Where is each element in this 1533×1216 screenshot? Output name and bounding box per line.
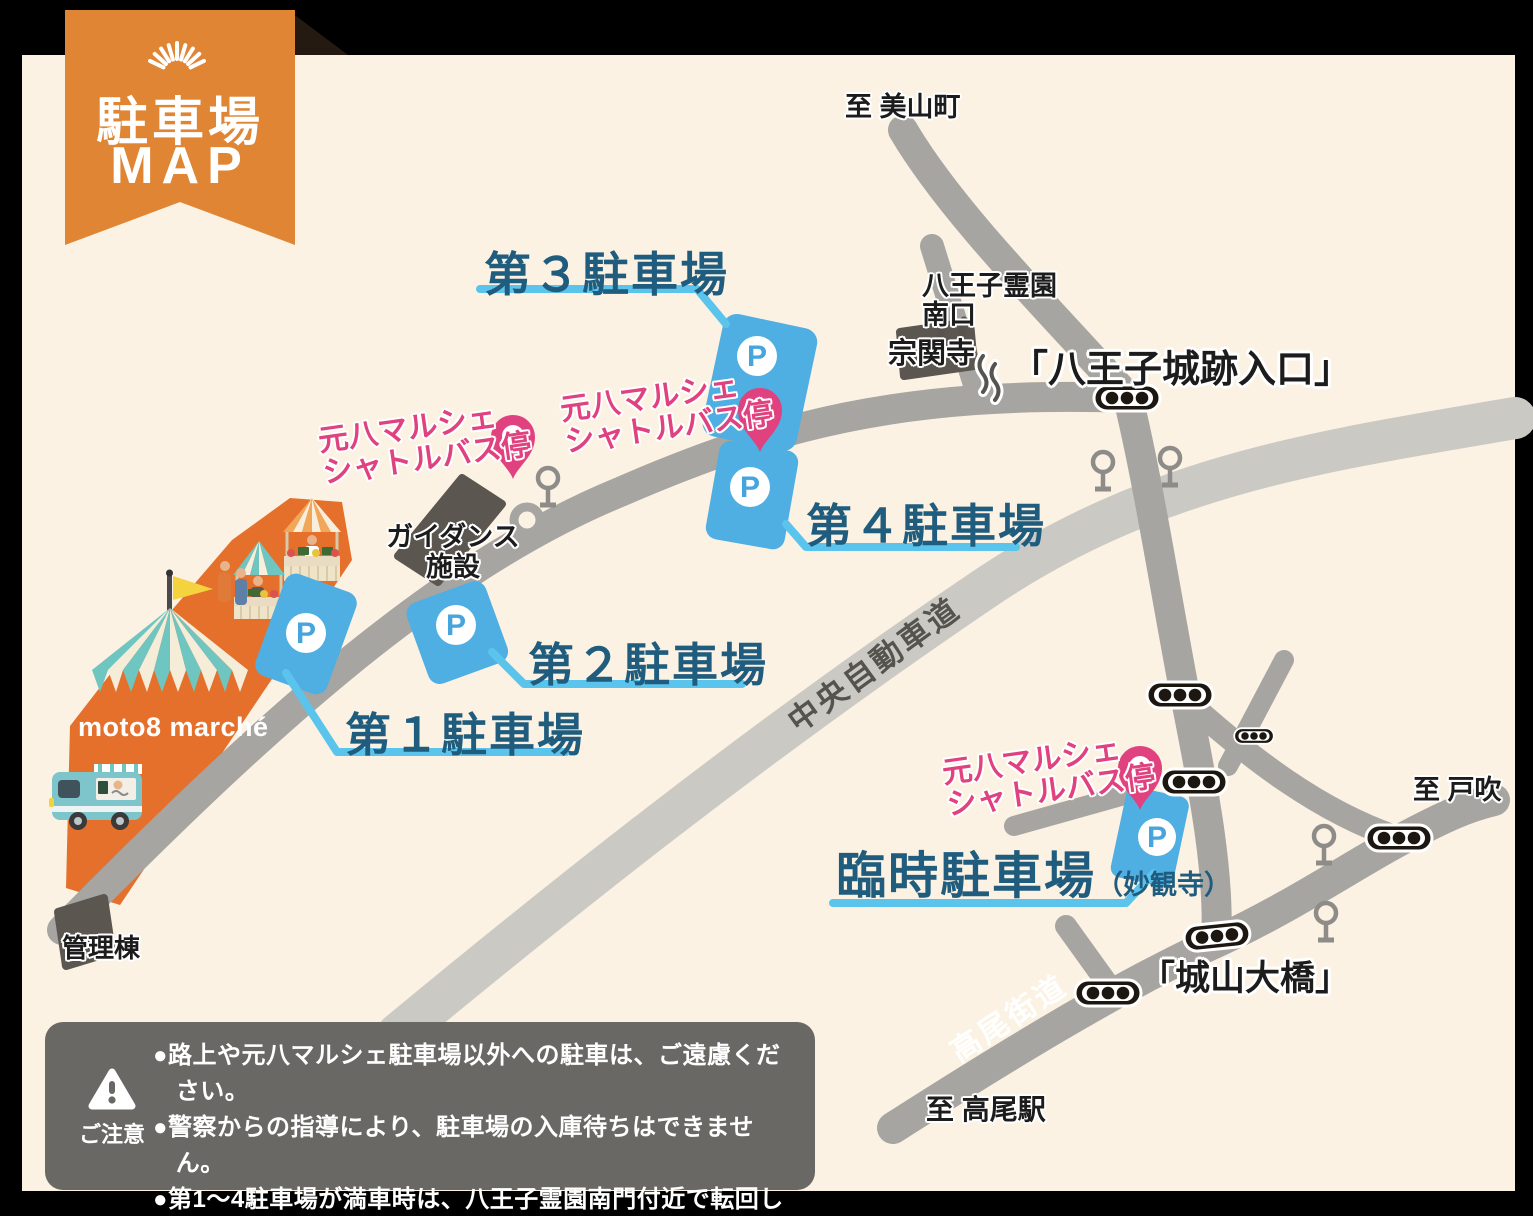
- ribbon-fold: [292, 13, 348, 55]
- label-miyama: 至 美山町: [845, 85, 961, 124]
- label-lot3: 第３駐車場: [484, 236, 729, 305]
- label-temp-parking: 臨時駐車場 （妙観寺）: [836, 836, 1231, 908]
- label-takao-station: 至 高尾駅: [926, 1088, 1046, 1128]
- svg-text:P: P: [446, 609, 466, 642]
- p-marker-2: P: [436, 605, 476, 645]
- p-marker-4: P: [730, 467, 770, 507]
- label-guidance-line1: ガイダンス: [383, 522, 523, 552]
- notice-item: ●第1〜4駐車場が満車時は、八王子霊園南門付近で転回していただく場合があります。…: [153, 1182, 797, 1216]
- label-lot2: 第２駐車場: [528, 629, 768, 695]
- label-reien-line2: 南口: [922, 301, 1057, 330]
- notice-icon-column: ご注意: [71, 1038, 153, 1178]
- traffic-light-icon: [1366, 825, 1432, 851]
- traffic-light-icon: [1161, 769, 1227, 795]
- p-marker-1: P: [286, 613, 326, 653]
- svg-text:P: P: [740, 471, 760, 504]
- label-lot4: 第４駐車場: [806, 490, 1046, 556]
- label-shiroyama-bridge: 「城山大橋」: [1140, 950, 1350, 1001]
- traffic-light-icon: [1075, 980, 1141, 1006]
- label-reien-line1: 八王子霊園: [922, 272, 1057, 301]
- notice-heading: ご注意: [79, 1117, 145, 1149]
- person-icon: [236, 568, 246, 578]
- p-marker-3: P: [737, 336, 777, 376]
- notice-item: ●路上や元八マルシェ駐車場以外への駐車は、ご遠慮ください。: [153, 1038, 797, 1110]
- notice-items: ●路上や元八マルシェ駐車場以外への駐車は、ご遠慮ください。 ●警察からの指導によ…: [153, 1038, 797, 1178]
- ribbon-subtitle: MAP: [65, 136, 295, 196]
- label-kanritou: 管理棟: [62, 928, 140, 965]
- notice-item: ●警察からの指導により、駐車場の入庫待ちはできません。: [153, 1110, 797, 1182]
- traffic-light-icon: [1183, 920, 1251, 953]
- label-temp-main: 臨時駐車場: [836, 836, 1096, 908]
- label-castle-entrance: 「八王子城跡入口」: [1010, 338, 1352, 393]
- person-icon: [220, 561, 230, 571]
- market-logo: moto8 marché: [78, 712, 269, 743]
- svg-text:P: P: [747, 340, 767, 373]
- label-lot1: 第１駐車場: [345, 699, 585, 765]
- parking-map: P P P P P 駐車場 MAP 第３駐車場 第４駐車場 第２駐車場 第１駐車…: [0, 0, 1533, 1216]
- label-guidance-line2: 施設: [383, 552, 523, 582]
- traffic-light-icon: [1147, 682, 1213, 708]
- label-temp-note: （妙観寺）: [1096, 863, 1231, 908]
- label-reien: 八王子霊園 南口: [922, 272, 1057, 330]
- svg-text:P: P: [296, 617, 316, 650]
- label-sokanji: 宗関寺: [888, 330, 975, 372]
- notice-box: ご注意 ●路上や元八マルシェ駐車場以外への駐車は、ご遠慮ください。 ●警察からの…: [45, 1022, 815, 1190]
- label-tobuki: 至 戸吹: [1413, 768, 1502, 807]
- traffic-light-icon: [1234, 728, 1274, 744]
- label-guidance: ガイダンス 施設: [383, 522, 523, 582]
- warning-icon: [88, 1067, 136, 1111]
